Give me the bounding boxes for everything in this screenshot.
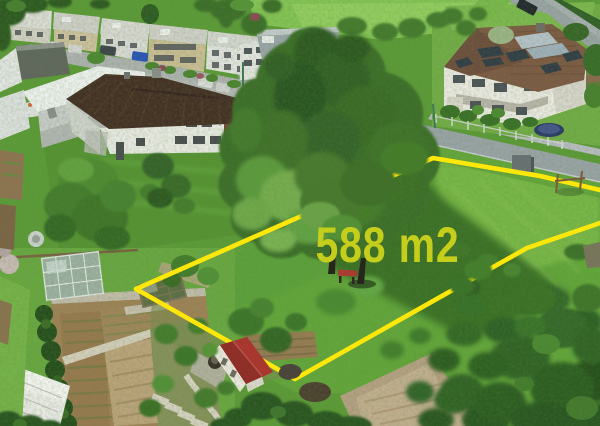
svg-text:588 m2: 588 m2 (316, 217, 460, 273)
